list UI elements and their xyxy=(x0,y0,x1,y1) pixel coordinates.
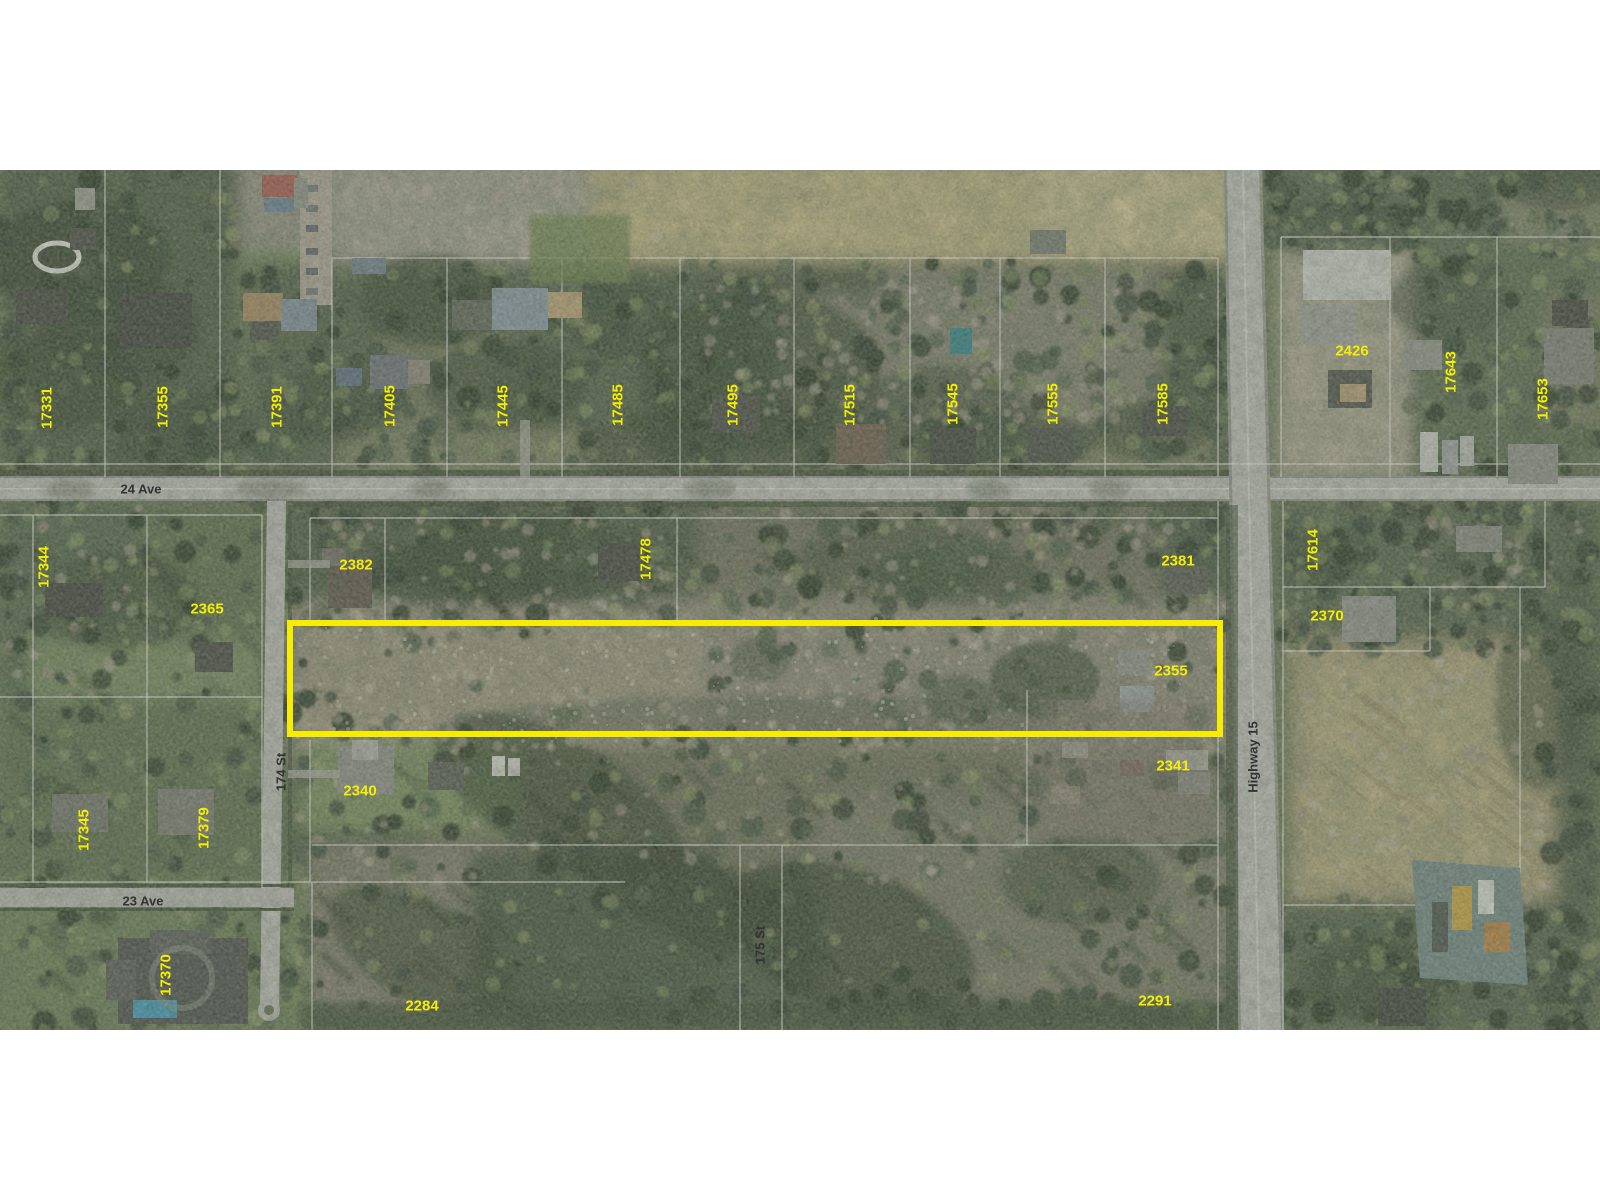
svg-text:2370: 2370 xyxy=(1310,608,1343,625)
svg-text:17478: 17478 xyxy=(638,538,655,580)
svg-text:17345: 17345 xyxy=(76,809,93,851)
svg-text:17379: 17379 xyxy=(196,807,213,849)
svg-text:2426: 2426 xyxy=(1335,343,1368,360)
svg-text:2365: 2365 xyxy=(190,601,223,618)
svg-text:17405: 17405 xyxy=(382,385,399,427)
svg-text:17344: 17344 xyxy=(36,545,53,587)
svg-text:17545: 17545 xyxy=(945,383,962,425)
svg-text:2382: 2382 xyxy=(339,557,372,574)
svg-text:2341: 2341 xyxy=(1156,758,1189,775)
svg-text:2381: 2381 xyxy=(1161,553,1194,570)
svg-text:17355: 17355 xyxy=(155,386,172,428)
svg-text:17331: 17331 xyxy=(39,387,56,429)
svg-text:24 Ave: 24 Ave xyxy=(121,482,162,497)
svg-text:174 St: 174 St xyxy=(274,752,289,791)
svg-text:2291: 2291 xyxy=(1138,993,1171,1010)
svg-text:17370: 17370 xyxy=(158,954,175,996)
svg-text:17555: 17555 xyxy=(1045,383,1062,425)
svg-text:17495: 17495 xyxy=(725,384,742,426)
svg-text:23 Ave: 23 Ave xyxy=(123,894,164,909)
svg-text:2284: 2284 xyxy=(405,998,439,1015)
svg-text:17614: 17614 xyxy=(1305,528,1322,570)
svg-text:17445: 17445 xyxy=(495,385,512,427)
svg-text:Highway 15: Highway 15 xyxy=(1246,721,1261,793)
svg-text:17515: 17515 xyxy=(842,384,859,426)
svg-text:2355: 2355 xyxy=(1154,663,1187,680)
svg-text:17585: 17585 xyxy=(1155,383,1172,425)
svg-text:17643: 17643 xyxy=(1443,351,1460,393)
svg-text:17485: 17485 xyxy=(610,384,627,426)
svg-text:17391: 17391 xyxy=(269,386,286,428)
svg-text:17653: 17653 xyxy=(1535,378,1552,420)
svg-text:175 St: 175 St xyxy=(753,925,768,964)
svg-text:2340: 2340 xyxy=(343,783,376,800)
